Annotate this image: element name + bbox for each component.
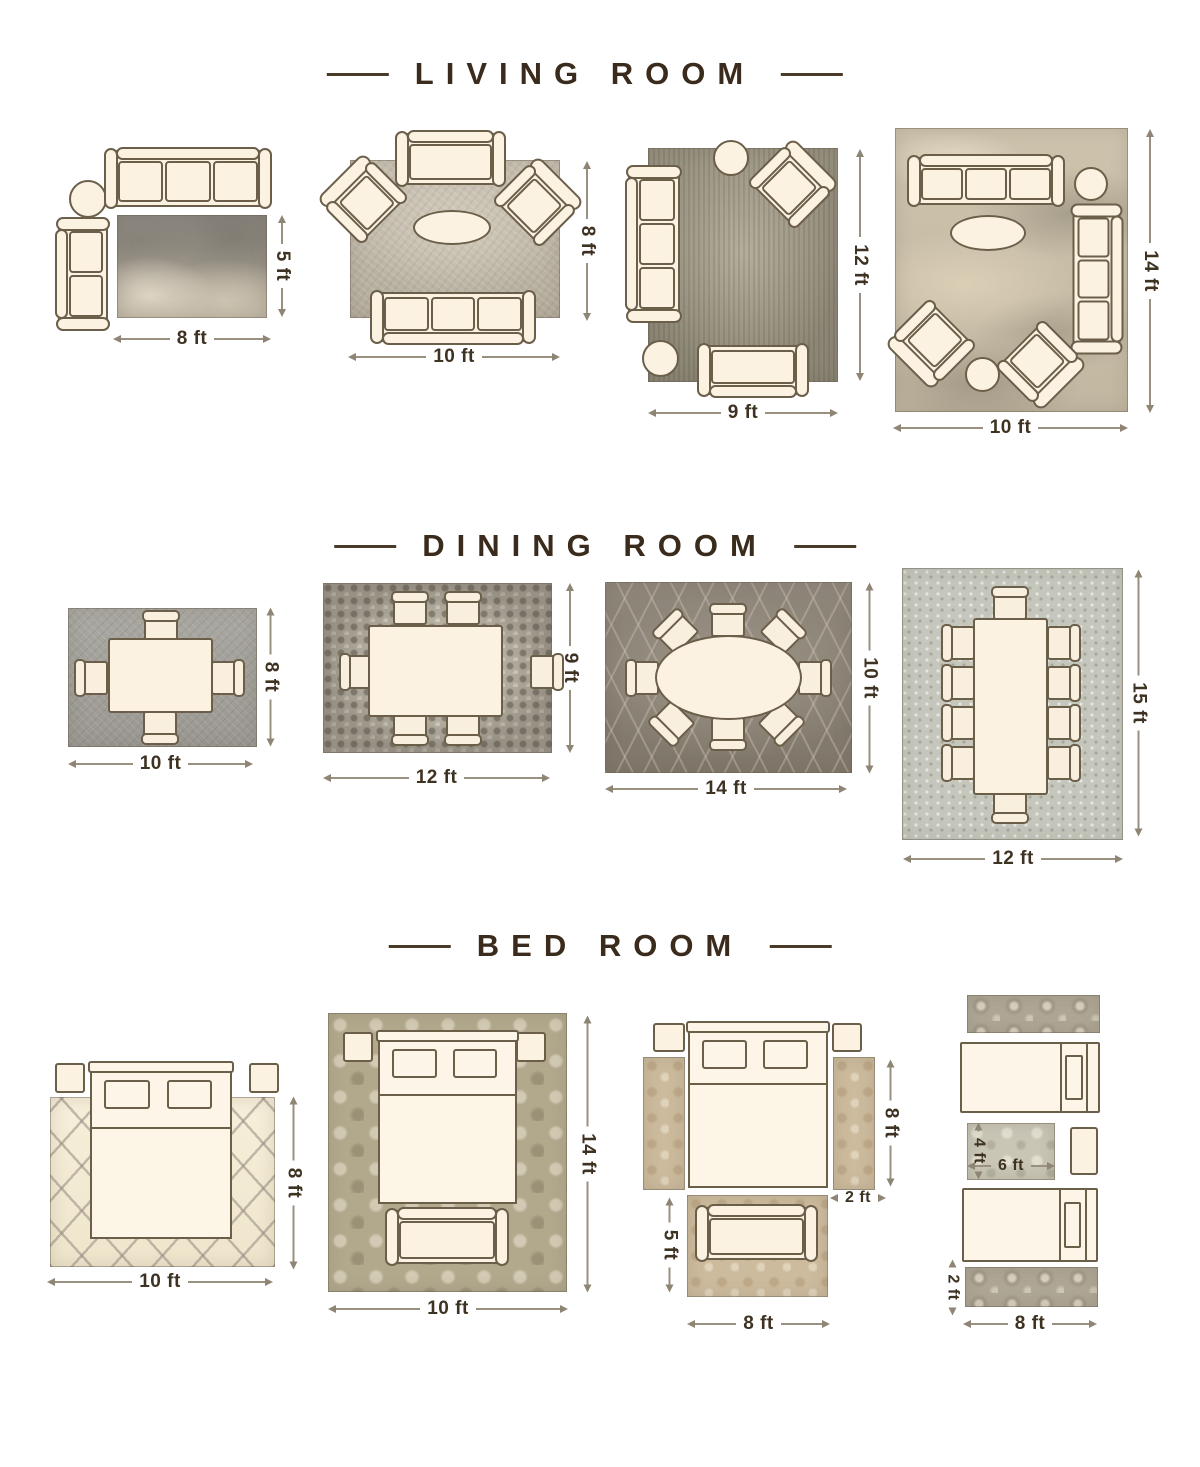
width-dimension: 8 ft xyxy=(113,326,271,352)
dining-chair xyxy=(1047,626,1077,660)
bench xyxy=(698,1207,815,1260)
width-dimension: 8 ft xyxy=(687,1311,830,1337)
dining-chair xyxy=(945,706,975,740)
width-dimension: 10 ft xyxy=(47,1269,273,1295)
sofa xyxy=(910,157,1062,205)
diagram-bedroom-runners: 8 ft 2 ft 5 ft 8 ft xyxy=(643,1022,923,1337)
dimension-label: 10 ft xyxy=(132,1271,188,1293)
loveseat xyxy=(58,220,108,328)
dimension-label: 9 ft xyxy=(559,646,581,691)
section-title-dining-room: DINING ROOM xyxy=(334,528,856,564)
bed xyxy=(688,1023,828,1188)
title-rule xyxy=(389,945,451,948)
diagram-dining-10x8: 10 ft 8 ft xyxy=(55,593,325,808)
twin-bed xyxy=(962,1188,1098,1262)
nightstand xyxy=(249,1063,279,1093)
dimension-label: 8 ft xyxy=(736,1313,781,1335)
width-dimension: 10 ft xyxy=(893,415,1128,441)
section-title-label: LIVING ROOM xyxy=(415,56,755,92)
dimension-label: 14 ft xyxy=(577,1126,599,1182)
dimension-label: 10 ft xyxy=(983,417,1039,439)
title-rule xyxy=(327,73,389,76)
title-rule xyxy=(794,545,856,548)
height-dimension: 12 ft xyxy=(847,149,873,381)
dining-chair xyxy=(1047,706,1077,740)
width-dimension: 10 ft xyxy=(328,1296,568,1322)
dimension-label: 8 ft xyxy=(283,1161,305,1206)
dimension-label: 8 ft xyxy=(260,655,282,700)
dining-chair xyxy=(446,595,480,625)
runner-width-dimension: 8 ft xyxy=(963,1311,1097,1337)
diagram-living-9x12: 9 ft 12 ft xyxy=(620,132,895,442)
diagram-bedroom-10x14: 10 ft 14 ft xyxy=(328,1013,618,1343)
width-dimension: 10 ft xyxy=(68,751,253,777)
dimension-label: 12 ft xyxy=(409,767,465,789)
nightstand xyxy=(832,1023,862,1052)
dimension-label: 8 ft xyxy=(880,1101,902,1146)
dining-chair xyxy=(143,711,177,741)
width-dimension: 9 ft xyxy=(648,400,838,426)
runner-rug xyxy=(643,1057,685,1190)
section-title-bed-room: BED ROOM xyxy=(389,928,832,964)
section-title-label: BED ROOM xyxy=(477,928,744,964)
dimension-label: 10 ft xyxy=(420,1298,476,1320)
runner-width-dimension: 2 ft xyxy=(830,1187,882,1209)
dimension-label: 14 ft xyxy=(698,778,754,800)
dining-chair xyxy=(945,626,975,660)
sofa xyxy=(373,292,533,342)
runner-rug xyxy=(833,1057,875,1190)
nightstand xyxy=(343,1032,373,1062)
dining-chair xyxy=(1047,746,1077,780)
area-rug xyxy=(117,215,267,318)
dining-chair xyxy=(1047,666,1077,700)
dining-chair xyxy=(211,661,241,695)
dimension-label: 8 ft xyxy=(170,328,215,350)
round-ottoman xyxy=(713,140,749,176)
foot-rug-height-dimension: 5 ft xyxy=(657,1198,683,1293)
width-dimension: 14 ft xyxy=(605,776,847,802)
round-ottoman xyxy=(965,357,1000,392)
dining-chair xyxy=(798,661,828,695)
dimension-label: 2 ft xyxy=(838,1189,878,1207)
diagram-bedroom-twin-runners: 4 ft 6 ft 2 ft 8 ft xyxy=(938,990,1200,1340)
height-dimension: 5 ft xyxy=(269,215,295,317)
section-title-label: DINING ROOM xyxy=(422,528,768,564)
sofa xyxy=(107,150,269,207)
dimension-label: 5 ft xyxy=(271,244,293,289)
height-dimension: 15 ft xyxy=(1126,570,1152,837)
round-side-table xyxy=(69,180,107,218)
dimension-label: 10 ft xyxy=(133,753,189,775)
diagram-living-10x14: 10 ft 14 ft xyxy=(880,112,1200,467)
dining-chair xyxy=(78,661,108,695)
dining-table xyxy=(368,625,503,717)
dimension-label: 8 ft xyxy=(576,219,598,264)
dining-chair xyxy=(993,590,1027,620)
dining-chair xyxy=(945,666,975,700)
dining-chair xyxy=(530,655,560,689)
nightstand xyxy=(55,1063,85,1093)
dining-table xyxy=(108,638,213,713)
dining-chair xyxy=(393,595,427,625)
diagram-dining-12x15: 12 ft 15 ft xyxy=(897,565,1187,910)
dimension-label: 8 ft xyxy=(1008,1313,1053,1335)
dining-chair xyxy=(711,717,745,747)
oval-coffee-table xyxy=(950,215,1026,251)
dining-chair xyxy=(945,746,975,780)
diagram-bedroom-10x8: 10 ft 8 ft xyxy=(42,1052,332,1317)
dimension-label: 10 ft xyxy=(426,346,482,368)
diagram-living-10x8: 10 ft 8 ft xyxy=(330,122,630,397)
oval-coffee-table xyxy=(413,210,491,245)
title-rule xyxy=(781,73,843,76)
height-dimension: 8 ft xyxy=(574,161,600,321)
rug-size-guide: LIVING ROOM 8 ft 5 ft 10 ft 8 ft 9 ft 12… xyxy=(0,0,1200,1467)
center-rug-width-dimension: 6 ft xyxy=(967,1155,1055,1177)
round-side-table xyxy=(1074,167,1108,201)
runner-rug xyxy=(967,995,1100,1033)
dimension-label: 12 ft xyxy=(849,237,871,293)
sofa xyxy=(1073,207,1121,352)
dimension-label: 10 ft xyxy=(859,650,881,706)
diagram-living-8x5: 8 ft 5 ft xyxy=(55,130,325,380)
runner-rug xyxy=(965,1267,1098,1307)
twin-bed xyxy=(960,1042,1100,1113)
dimension-label: 2 ft xyxy=(944,1268,962,1308)
height-dimension: 10 ft xyxy=(857,583,883,774)
runner-height-dimension: 2 ft xyxy=(942,1260,964,1315)
bed xyxy=(378,1032,517,1204)
diagram-dining-12x9: 12 ft 9 ft xyxy=(323,582,613,817)
bench xyxy=(388,1210,506,1264)
dimension-label: 5 ft xyxy=(659,1223,681,1268)
nightstand xyxy=(516,1032,546,1062)
diagram-dining-14x10: 14 ft 10 ft xyxy=(600,578,900,818)
round-side-table xyxy=(642,340,679,377)
nightstand xyxy=(653,1023,685,1052)
dimension-label: 6 ft xyxy=(991,1157,1031,1175)
width-dimension: 12 ft xyxy=(903,846,1123,872)
width-dimension: 12 ft xyxy=(323,765,550,791)
height-dimension: 8 ft xyxy=(258,608,284,747)
oval-dining-table xyxy=(655,635,802,720)
height-dimension: 14 ft xyxy=(575,1016,601,1293)
dimension-label: 9 ft xyxy=(721,402,766,424)
height-dimension: 8 ft xyxy=(281,1097,307,1270)
bed-height-dimension: 8 ft xyxy=(878,1060,904,1187)
width-dimension: 10 ft xyxy=(348,344,560,370)
title-rule xyxy=(769,945,831,948)
settee xyxy=(700,345,806,395)
section-title-living-room: LIVING ROOM xyxy=(327,56,843,92)
sofa xyxy=(628,168,680,320)
dining-table xyxy=(973,618,1048,795)
dimension-label: 15 ft xyxy=(1128,675,1150,731)
dimension-label: 14 ft xyxy=(1139,243,1161,299)
height-dimension: 14 ft xyxy=(1137,129,1163,413)
dining-chair xyxy=(711,607,745,637)
settee xyxy=(398,133,503,185)
title-rule xyxy=(334,545,396,548)
dimension-label: 12 ft xyxy=(985,848,1041,870)
nightstand xyxy=(1070,1127,1098,1175)
height-dimension: 9 ft xyxy=(557,583,583,753)
bed xyxy=(90,1063,232,1239)
